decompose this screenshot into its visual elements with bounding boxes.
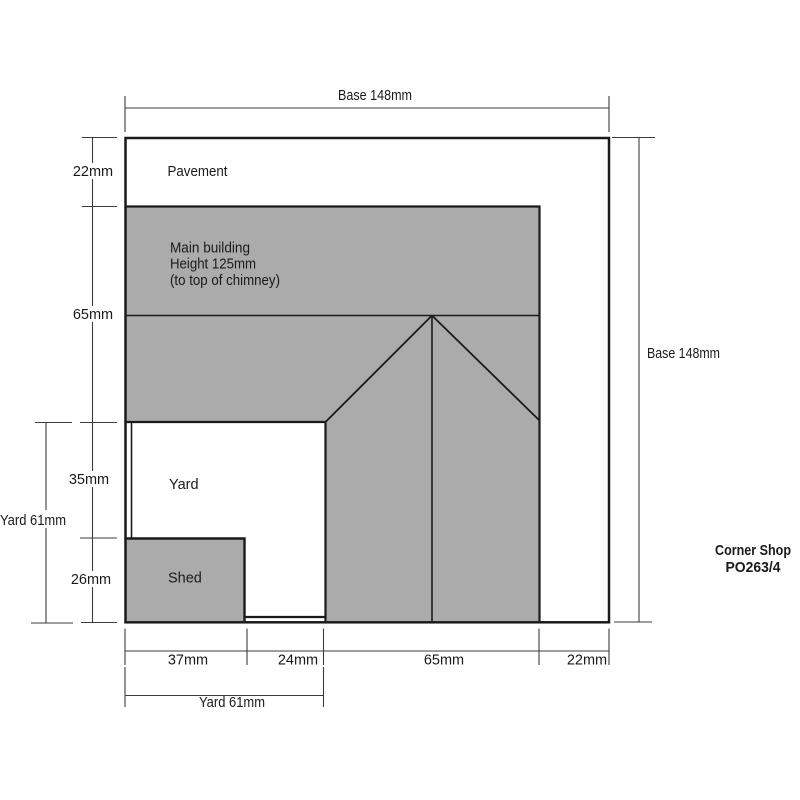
svg-text:24mm: 24mm	[278, 653, 318, 669]
svg-text:37mm: 37mm	[168, 653, 208, 669]
svg-text:22mm: 22mm	[567, 653, 607, 669]
svg-text:Base 148mm: Base 148mm	[647, 346, 720, 362]
svg-text:35mm: 35mm	[69, 472, 109, 488]
svg-text:22mm: 22mm	[73, 164, 113, 180]
svg-text:Yard 61mm: Yard 61mm	[199, 695, 265, 711]
svg-text:65mm: 65mm	[73, 307, 113, 323]
svg-text:Yard: Yard	[169, 477, 199, 493]
svg-text:Shed: Shed	[168, 571, 202, 587]
svg-text:Base 148mm: Base 148mm	[338, 88, 412, 104]
svg-text:Pavement: Pavement	[168, 164, 228, 180]
svg-text:26mm: 26mm	[71, 572, 111, 588]
svg-text:65mm: 65mm	[424, 653, 464, 669]
svg-text:Height 125mm: Height 125mm	[170, 257, 256, 273]
svg-text:PO263/4: PO263/4	[726, 559, 782, 576]
svg-text:Main building: Main building	[170, 241, 250, 257]
svg-text:(to top of chimney): (to top of chimney)	[170, 273, 280, 289]
svg-text:Yard 61mm: Yard 61mm	[0, 513, 66, 529]
svg-text:Corner Shop: Corner Shop	[715, 542, 791, 559]
